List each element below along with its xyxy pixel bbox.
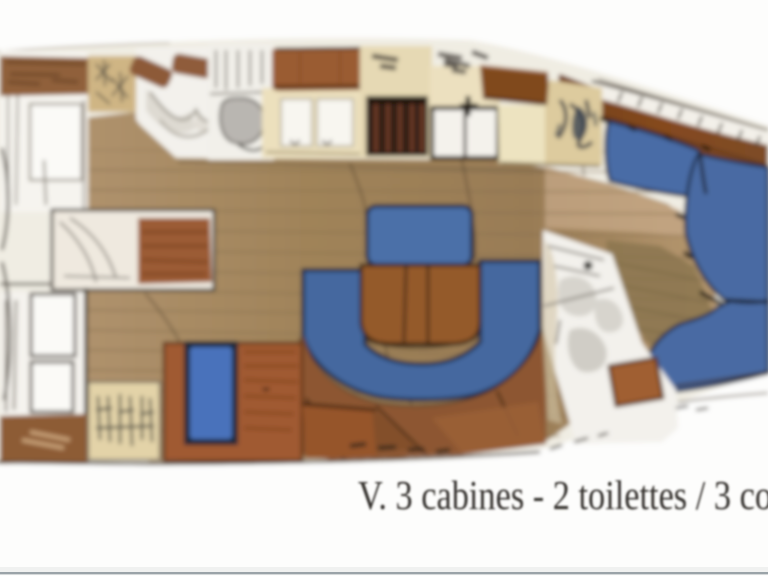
svg-text:V. 3 cabines - 2 toilettes / 3: V. 3 cabines - 2 toilettes / 3 co [358, 472, 768, 518]
